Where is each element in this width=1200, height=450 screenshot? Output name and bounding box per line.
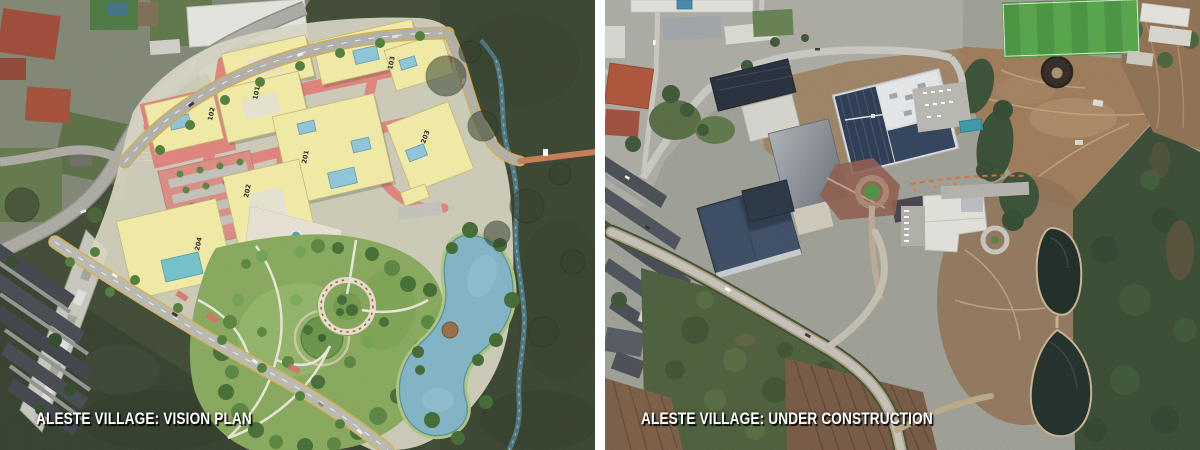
comparison-figure: 101 102 103 201 202 203 204 ALESTE VILLA… bbox=[0, 0, 1200, 450]
construction-photo-panel: ALESTE VILLAGE: UNDER CONSTRUCTION bbox=[605, 0, 1200, 450]
photo-grain-overlay bbox=[0, 0, 595, 450]
panel-divider bbox=[595, 0, 605, 450]
construction-caption: ALESTE VILLAGE: UNDER CONSTRUCTION bbox=[641, 409, 933, 429]
construction-photo-image bbox=[605, 0, 1200, 450]
photo-grain-overlay bbox=[605, 0, 1200, 450]
vision-plan-caption: ALESTE VILLAGE: VISION PLAN bbox=[36, 409, 252, 429]
vision-plan-image: 101 102 103 201 202 203 204 bbox=[0, 0, 595, 450]
vision-plan-panel: 101 102 103 201 202 203 204 ALESTE VILLA… bbox=[0, 0, 595, 450]
